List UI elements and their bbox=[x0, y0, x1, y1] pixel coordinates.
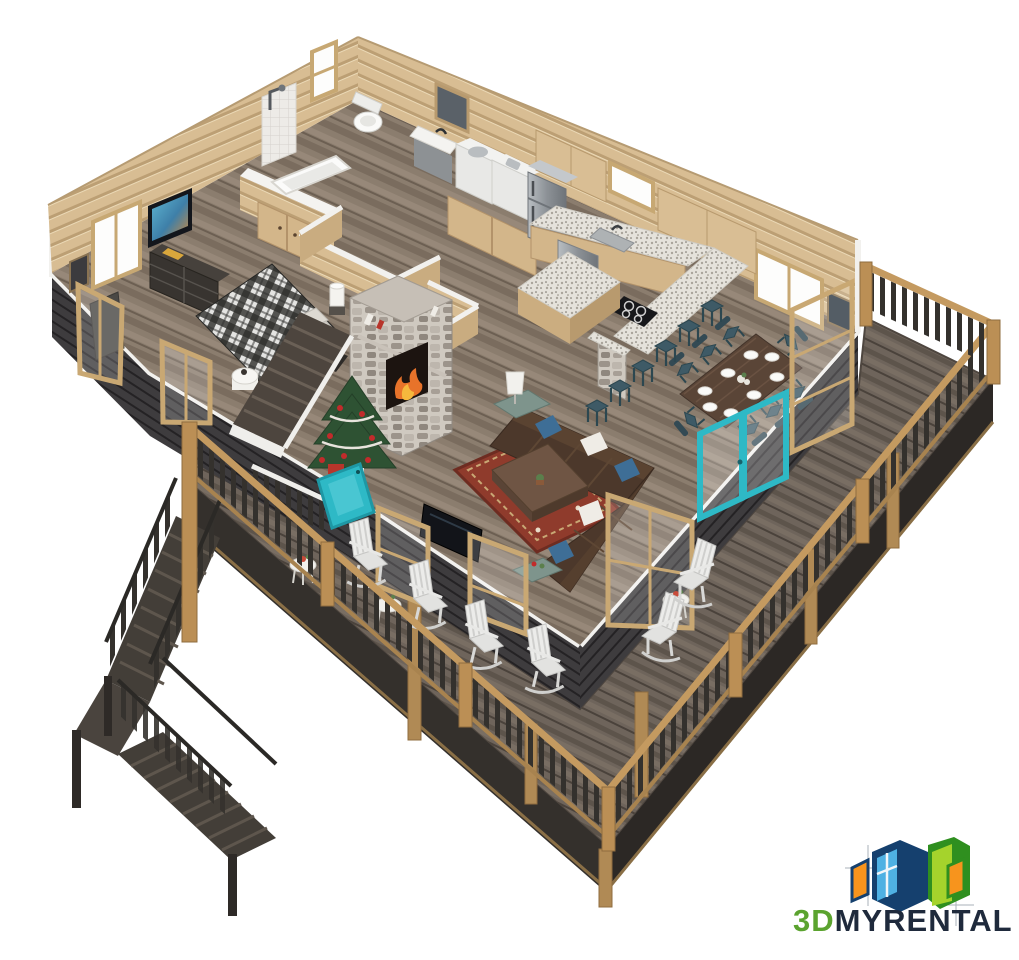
bedside-drum-table bbox=[232, 368, 258, 390]
floorplan-render: 3DMYRENTAL bbox=[0, 0, 1019, 960]
floor-lamp bbox=[329, 283, 345, 315]
window-nw-top bbox=[312, 42, 336, 100]
brand-logo: 3DMYRENTAL bbox=[793, 837, 1013, 938]
logo-wordmark: 3DMYRENTAL bbox=[793, 903, 1013, 938]
shower-tile bbox=[262, 83, 296, 166]
window-frame bbox=[792, 282, 852, 452]
logo-text-myrental: MYRENTAL bbox=[835, 903, 1013, 938]
logo-building-icon bbox=[852, 837, 970, 912]
render-canvas: 3DMYRENTAL bbox=[0, 0, 1019, 960]
logo-text-3d: 3D bbox=[793, 903, 835, 938]
